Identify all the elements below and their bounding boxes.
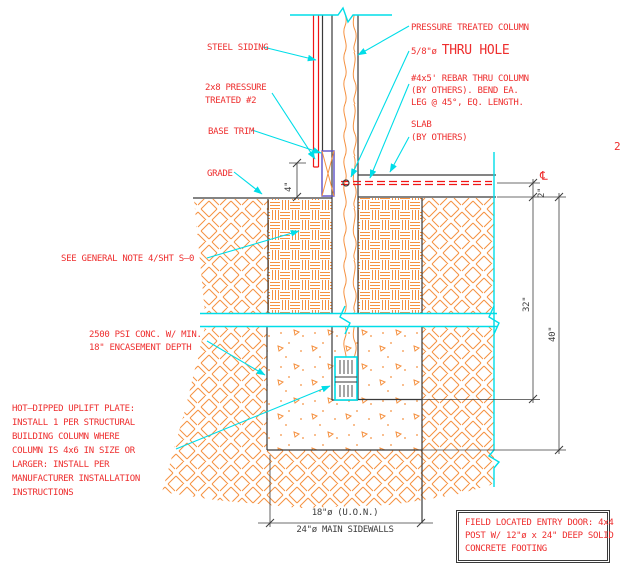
footing-detail-drawing: STEEL SIDING 2x8 PRESSURE TREATED #2 BAS… <box>0 0 624 571</box>
leader-steel-siding <box>263 47 316 60</box>
thru-hole-size: 5/8"ø <box>411 47 442 57</box>
field-note-box: FIELD LOCATED ENTRY DOOR: 4x4POST W/ 12"… <box>456 510 610 563</box>
leader-base-trim <box>252 130 321 153</box>
earth-hatch-upper-right <box>422 198 494 313</box>
label-base-trim: BASE TRIM <box>208 126 254 139</box>
dim-slab-offset: 2" <box>537 188 547 198</box>
rebar-dashed-line <box>341 182 492 185</box>
label-2x8-line1: 2x8 PRESSURE <box>205 82 266 95</box>
leader-slab <box>390 137 409 172</box>
section-break-band <box>200 314 497 327</box>
label-general-note: SEE GENERAL NOTE 4/SHT S–0 <box>61 253 194 266</box>
dim-footing-depth: 40" <box>548 327 558 342</box>
steel-siding-lines <box>314 15 319 167</box>
label-rebar-note: #4x5' REBAR THRU COLUMN(BY OTHERS). BEND… <box>411 73 529 109</box>
label-uplift-note: HOT–DIPPED UPLIFT PLATE:INSTALL 1 PER ST… <box>12 402 140 500</box>
label-thru-hole: 5/8"ø THRU HOLE <box>411 44 509 59</box>
encasement-hatch-left <box>268 199 332 313</box>
centerline-symbol: ℄ <box>540 170 547 183</box>
dim-base-height: 4" <box>284 182 294 192</box>
dim-encasement: 32" <box>522 297 532 312</box>
thru-hole-text: THRU HOLE <box>442 43 510 58</box>
label-slab-note: SLAB(BY OTHERS) <box>411 119 467 145</box>
uplift-plate <box>335 357 357 400</box>
label-conc-note: 2500 PSI CONC. W/ MIN.18" ENCASEMENT DEP… <box>89 329 202 355</box>
label-steel-siding: STEEL SIDING <box>207 42 268 55</box>
dim-diameter-uon: 18"ø (U.O.N.) <box>270 508 420 518</box>
label-grade: GRADE <box>207 168 233 181</box>
detail-number: 2 <box>614 140 620 153</box>
earth-hatch-upper-left <box>194 199 268 313</box>
leader-grade <box>234 172 262 194</box>
leader-thru-hole <box>351 51 409 177</box>
column-wood-grain-upper <box>333 15 357 313</box>
leader-pressure-treated-column <box>358 26 409 55</box>
label-2x8-line2: TREATED #2 <box>205 95 256 108</box>
encasement-hatch-right <box>358 198 422 313</box>
slab-lines <box>358 175 496 197</box>
dim-diameter-main: 24"ø MAIN SIDEWALLS <box>255 525 435 535</box>
leader-rebar <box>370 84 409 178</box>
label-pressure-treated-column: PRESSURE TREATED COLUMN <box>411 22 529 35</box>
field-note-text: FIELD LOCATED ENTRY DOOR: 4x4POST W/ 12"… <box>458 512 608 561</box>
